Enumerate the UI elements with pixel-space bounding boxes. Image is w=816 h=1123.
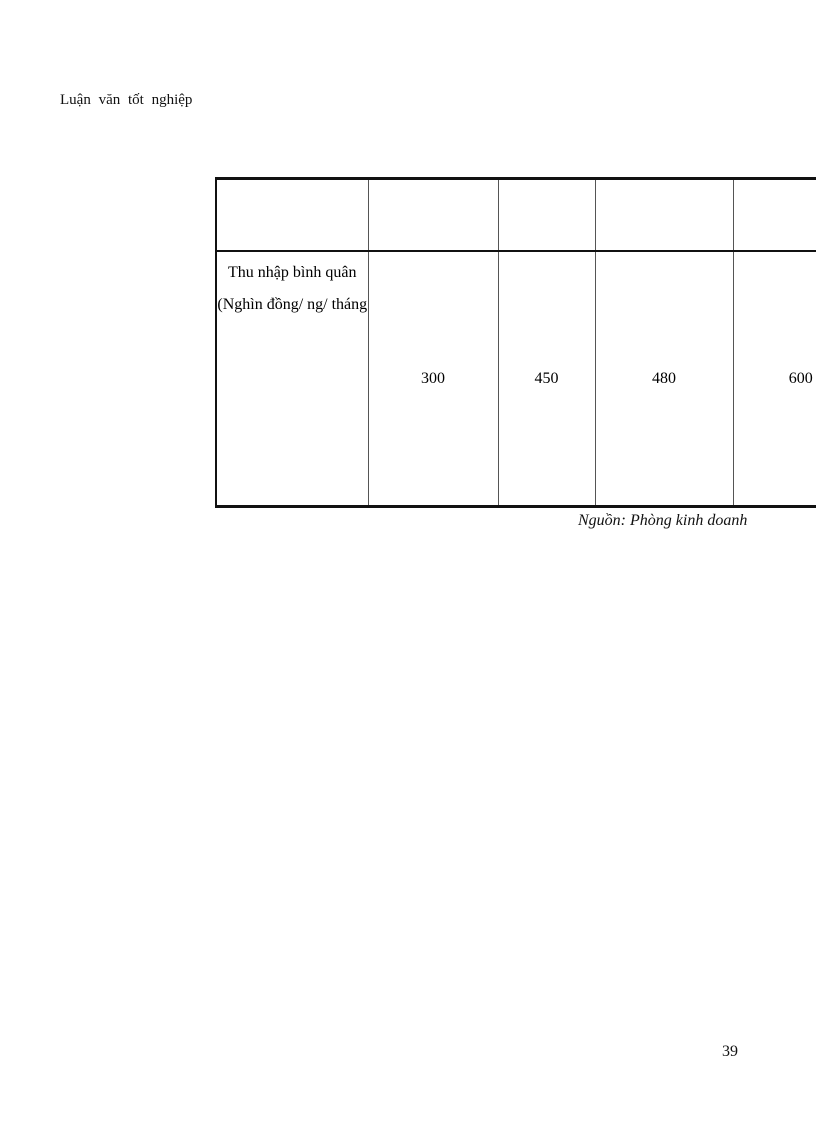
table-data-row: Thu nhập bình quân (Nghìn đồng/ ng/ thán… (216, 251, 816, 507)
page-header: Luận văn tốt nghiệp (60, 92, 192, 109)
header-cell-empty (595, 179, 733, 252)
value-cell-3: 480 (595, 251, 733, 507)
header-cell-empty (216, 179, 368, 252)
value-cell-4: 600 (733, 251, 816, 507)
source-note: Nguồn: Phòng kinh doanh (578, 512, 747, 530)
row-label-line1: Thu nhập bình quân (217, 257, 368, 289)
table-header-row (216, 179, 816, 252)
income-table: Thu nhập bình quân (Nghìn đồng/ ng/ thán… (215, 177, 816, 508)
row-label-cell: Thu nhập bình quân (Nghìn đồng/ ng/ thán… (216, 251, 368, 507)
header-cell-empty (368, 179, 498, 252)
row-label-line2: (Nghìn đồng/ ng/ tháng (217, 289, 368, 321)
value-cell-1: 300 (368, 251, 498, 507)
value-cell-2: 450 (498, 251, 595, 507)
header-cell-empty (498, 179, 595, 252)
document-page: Luận văn tốt nghiệp Thu nhập bình quân (… (0, 0, 816, 1123)
header-cell-empty (733, 179, 816, 252)
page-number: 39 (722, 1043, 738, 1061)
